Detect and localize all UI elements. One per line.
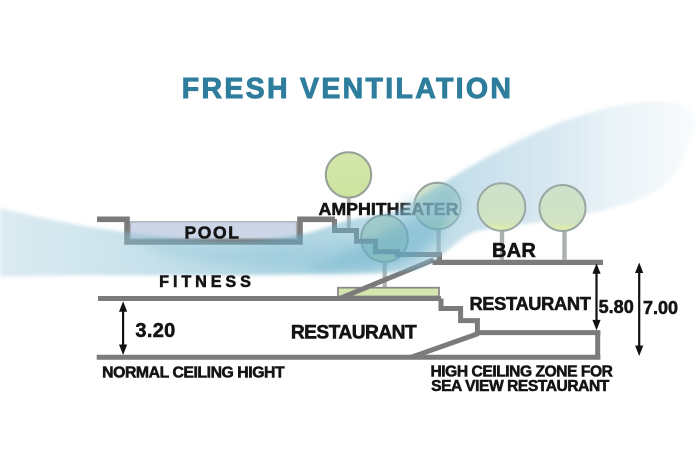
svg-text:3.20: 3.20 <box>135 320 175 342</box>
svg-text:SEA VIEW RESTAURANT: SEA VIEW RESTAURANT <box>431 378 610 395</box>
svg-text:7.00: 7.00 <box>643 298 678 318</box>
svg-text:RESTAURANT: RESTAURANT <box>291 323 417 344</box>
svg-text:FRESH VENTILATION: FRESH VENTILATION <box>182 73 514 105</box>
svg-text:5.80: 5.80 <box>599 297 634 317</box>
svg-text:RESTAURANT: RESTAURANT <box>469 293 590 314</box>
svg-text:POOL: POOL <box>185 223 241 243</box>
svg-text:NORMAL CEILING HIGHT: NORMAL CEILING HIGHT <box>102 365 285 382</box>
svg-text:BAR: BAR <box>492 240 536 262</box>
svg-text:FITNESS: FITNESS <box>159 273 255 291</box>
